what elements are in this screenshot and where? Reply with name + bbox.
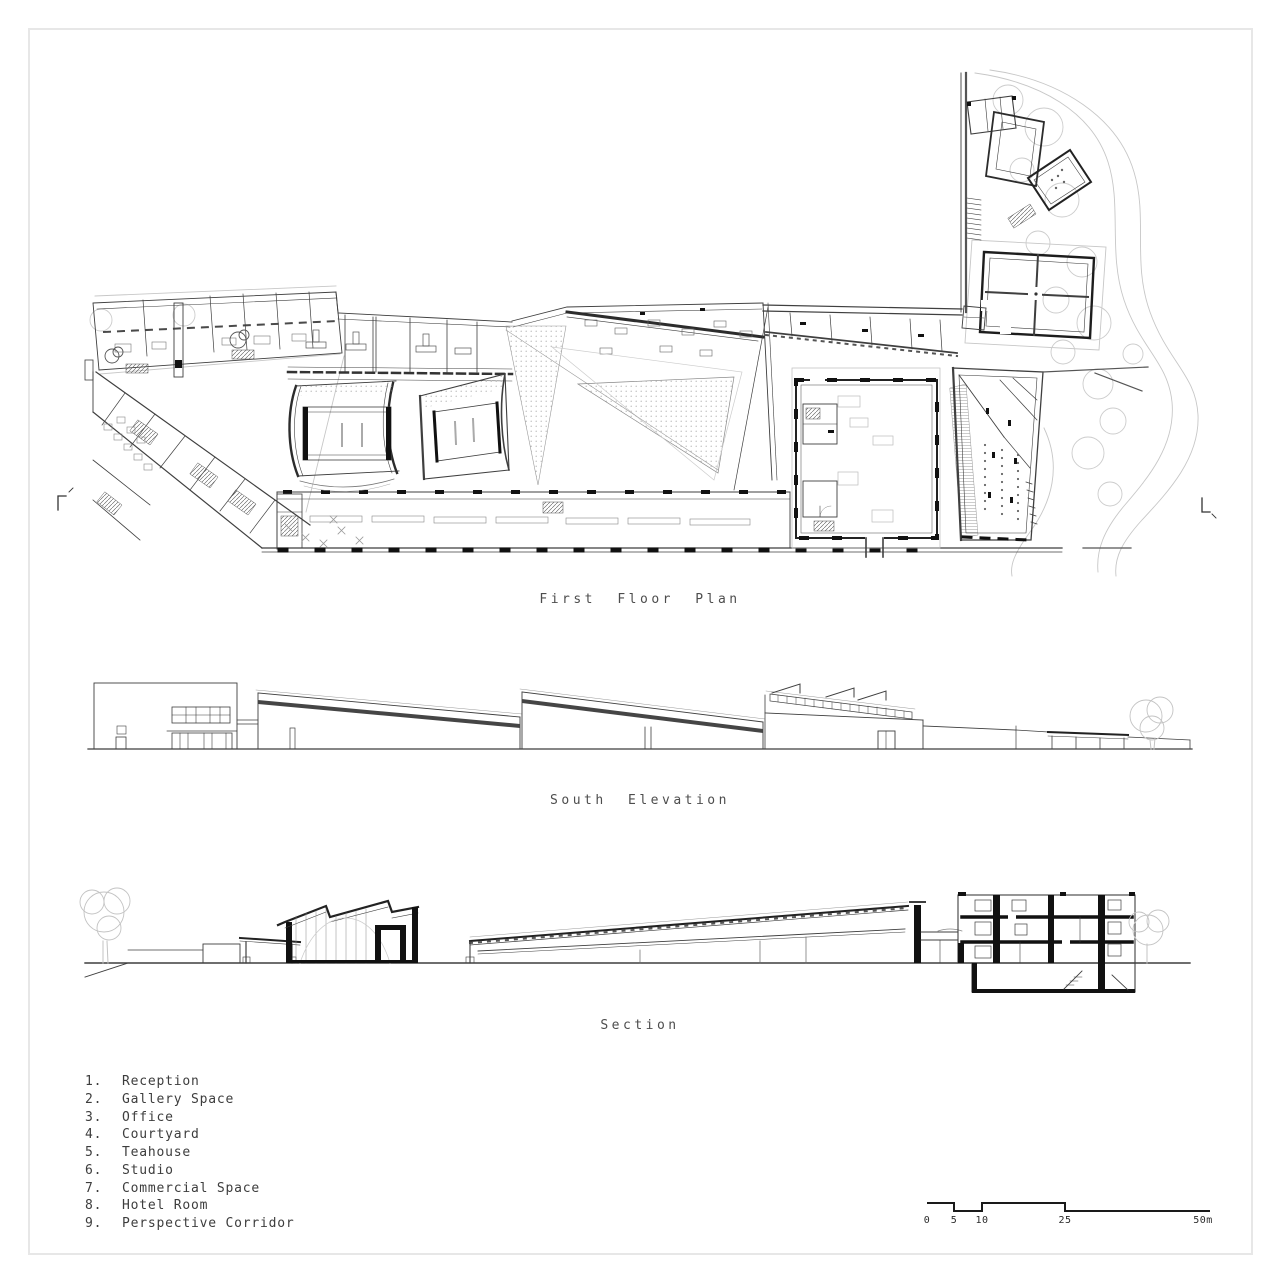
office-band-top-right	[763, 305, 962, 356]
legend-item-name: Courtyard	[122, 1127, 200, 1142]
floor-plan-drawing	[58, 70, 1216, 576]
legend: 1.Reception 2.Gallery Space 3.Office 4.C…	[85, 1073, 295, 1233]
section-main-cut-building	[278, 901, 418, 963]
legend-item: 9.Perspective Corridor	[85, 1215, 295, 1233]
elevation-hotel-block	[94, 683, 258, 749]
legend-item-number: 6.	[85, 1162, 122, 1180]
section-cut-marker-left	[58, 488, 73, 510]
legend-item-name: Office	[122, 1110, 174, 1125]
section-long-roof	[466, 902, 925, 963]
section-hotel-building	[958, 892, 1135, 993]
south-elevation-drawing	[88, 683, 1192, 749]
office-band-top-middle	[288, 292, 512, 381]
legend-item-name: Hotel Room	[122, 1198, 208, 1213]
scale-label: 25	[1058, 1215, 1071, 1226]
legend-item: 4.Courtyard	[85, 1126, 295, 1144]
legend-item-number: 5.	[85, 1144, 122, 1162]
legend-item-number: 1.	[85, 1073, 122, 1091]
legend-item: 7.Commercial Space	[85, 1180, 295, 1198]
elevation-tree	[1130, 697, 1173, 749]
section-tree-left	[80, 888, 130, 963]
legend-item-name: Reception	[122, 1074, 200, 1089]
legend-item-number: 2.	[85, 1091, 122, 1109]
elevation-shed-1	[256, 690, 522, 749]
gallery-curved-volume-2	[420, 374, 509, 479]
gallery-curved-volume-1	[289, 381, 399, 492]
courtyard-house	[962, 252, 1094, 338]
legend-item: 6.Studio	[85, 1162, 295, 1180]
legend-item-name: Teahouse	[122, 1145, 191, 1160]
legend-item: 5.Teahouse	[85, 1144, 295, 1162]
elevation-shed-2	[520, 689, 765, 749]
garden-path-lines	[1043, 367, 1148, 548]
legend-item: 2.Gallery Space	[85, 1091, 295, 1109]
scale-bar	[927, 1203, 1210, 1211]
gallery-square-building	[792, 368, 940, 557]
perspective-corridor-band	[262, 492, 1062, 552]
section-drawing	[80, 888, 1190, 993]
elevation-clerestory-block	[765, 684, 923, 749]
elevation-low-volumes	[923, 720, 1190, 749]
scale-label: 0	[924, 1215, 931, 1226]
legend-item-number: 8.	[85, 1197, 122, 1215]
spine-stair	[967, 198, 981, 240]
south-elevation-title: South Elevation	[0, 793, 1280, 808]
section-link-bridge	[921, 929, 962, 963]
scale-label: 50m	[1193, 1215, 1213, 1226]
legend-item-name: Commercial Space	[122, 1181, 260, 1196]
section-cut-marker-right	[1202, 498, 1216, 518]
section-title: Section	[0, 1018, 1280, 1033]
legend-item: 3.Office	[85, 1109, 295, 1127]
scale-label: 5	[951, 1215, 958, 1226]
legend-item: 1.Reception	[85, 1073, 295, 1091]
legend-item-number: 4.	[85, 1126, 122, 1144]
legend-item-name: Studio	[122, 1163, 174, 1178]
scale-label: 10	[975, 1215, 988, 1226]
legend-item: 8.Hotel Room	[85, 1197, 295, 1215]
legend-item-number: 3.	[85, 1109, 122, 1127]
hotel-wing-top-left	[85, 292, 342, 380]
floor-plan-title: First Floor Plan	[0, 592, 1280, 607]
tree-symbols	[90, 85, 1143, 506]
legend-item-number: 9.	[85, 1215, 122, 1233]
legend-item-name: Gallery Space	[122, 1092, 234, 1107]
legend-item-name: Perspective Corridor	[122, 1216, 295, 1231]
legend-item-number: 7.	[85, 1180, 122, 1198]
